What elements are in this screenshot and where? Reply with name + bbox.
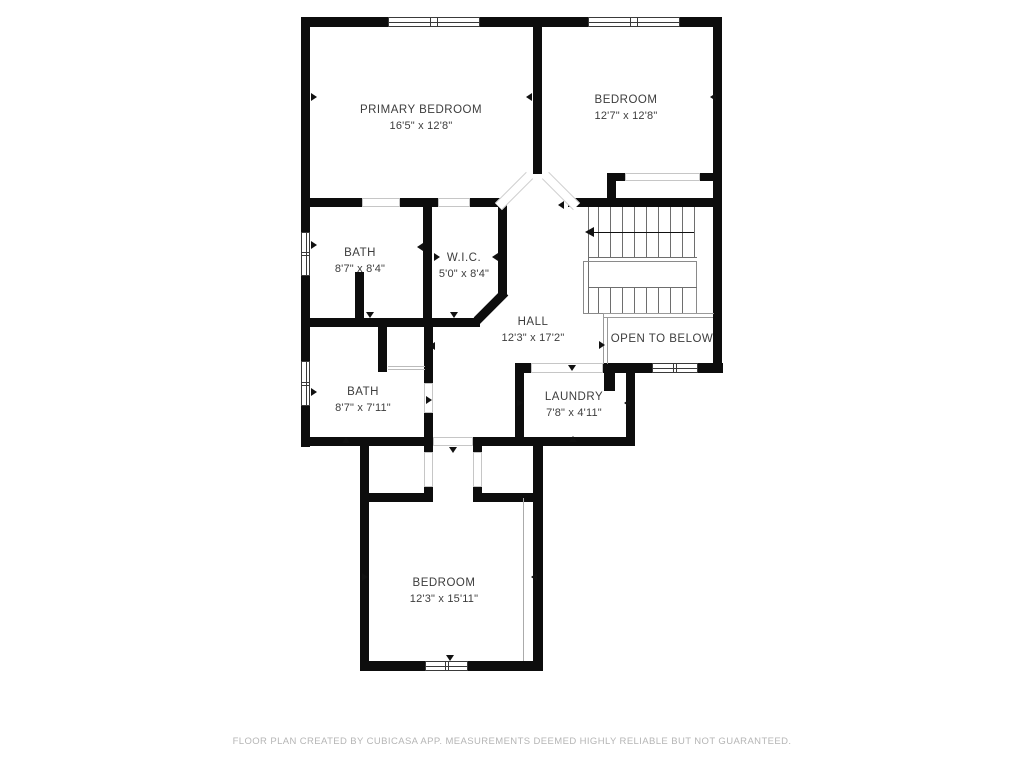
wall [360, 493, 430, 502]
measure-marker [417, 243, 423, 251]
window [588, 17, 680, 27]
window [301, 232, 310, 276]
room-dimensions: 12'3" x 17'2" [502, 332, 565, 344]
window [425, 661, 468, 671]
window-glazing-line [653, 368, 697, 369]
stair-tread-line [682, 287, 683, 313]
stair-tread-line [594, 232, 694, 233]
stair-tread-line [622, 287, 623, 313]
wall [533, 27, 542, 174]
room-name: BEDROOM [410, 577, 478, 589]
room-label-primary-bedroom: PRIMARY BEDROOM16'5" x 12'8" [360, 104, 482, 132]
stair-tread-line [670, 287, 671, 313]
measure-marker [710, 93, 716, 101]
wall [360, 437, 369, 671]
room-label-bedroom-top: BEDROOM12'7" x 12'8" [595, 94, 658, 122]
window-glazing-line [437, 18, 438, 26]
window [301, 361, 310, 406]
measure-marker [311, 93, 317, 101]
room-dimensions: 12'3" x 15'11" [410, 593, 478, 605]
measure-marker [311, 241, 317, 249]
measure-marker [366, 312, 374, 318]
window-glazing-line [673, 364, 674, 372]
window [388, 17, 480, 27]
room-label-hall: HALL12'3" x 17'2" [502, 316, 565, 344]
stair-tread-line [588, 207, 589, 313]
room-name: BATH [335, 247, 385, 259]
room-dimensions: 7'8" x 4'11" [545, 407, 603, 419]
stair-tread-line [610, 287, 611, 313]
window-glazing-line [676, 364, 677, 372]
room-dimensions: 5'0" x 8'4" [439, 268, 489, 280]
wall [301, 318, 480, 327]
stair-tread-line [388, 369, 425, 370]
window [652, 363, 698, 373]
stair-tread-line [523, 498, 524, 661]
stair-tread-line [658, 287, 659, 313]
room-dimensions: 8'7" x 7'11" [335, 402, 391, 414]
stair-tread-line [583, 261, 584, 313]
measure-marker [599, 341, 605, 349]
window-glazing-line [302, 385, 309, 386]
room-name: BATH [335, 386, 391, 398]
measure-marker [449, 447, 457, 453]
stair-tread-line [598, 287, 599, 313]
footer-disclaimer: FLOOR PLAN CREATED BY CUBICASA APP. MEAS… [0, 736, 1024, 747]
floor-plan-canvas: PRIMARY BEDROOM16'5" x 12'8"BEDROOM12'7"… [0, 0, 1024, 768]
wall [378, 327, 387, 372]
window-glazing-line [630, 18, 631, 26]
room-name: BEDROOM [595, 94, 658, 106]
window-glazing-line [448, 662, 449, 670]
stair-tread-line [603, 313, 604, 364]
window-glazing-line [306, 362, 307, 405]
cased-opening [625, 173, 700, 181]
room-label-laundry: LAUNDRY7'8" x 4'11" [545, 391, 603, 419]
window-glazing-line [302, 382, 309, 383]
measure-marker [426, 396, 432, 404]
window-glazing-line [302, 252, 309, 253]
room-label-wic: W.I.C.5'0" x 8'4" [439, 252, 489, 280]
wall [301, 198, 507, 207]
wall [604, 373, 615, 391]
stair-tread-line [607, 317, 608, 364]
cased-opening [438, 198, 470, 207]
measure-marker [517, 399, 523, 407]
measure-marker [568, 365, 576, 371]
room-dimensions: 16'5" x 12'8" [360, 120, 482, 132]
window-glazing-line [389, 22, 479, 23]
measure-marker [429, 342, 435, 350]
stair-tread-line [634, 287, 635, 313]
wall [498, 198, 507, 297]
window-glazing-line [430, 18, 431, 26]
room-name: LAUNDRY [545, 391, 603, 403]
cased-opening [424, 452, 433, 487]
cased-opening [362, 198, 400, 207]
wall [473, 437, 635, 446]
wall [355, 272, 364, 318]
room-name: OPEN TO BELOW [611, 333, 714, 345]
stair-tread-line [588, 287, 697, 288]
room-name: PRIMARY BEDROOM [360, 104, 482, 116]
door-opening-diagonal [495, 172, 533, 210]
measure-marker [311, 388, 317, 396]
window-glazing-line [445, 662, 446, 670]
stair-tread-line [388, 366, 425, 367]
measure-marker [492, 253, 498, 261]
cased-opening [531, 363, 603, 373]
stair-tread-line [588, 257, 697, 258]
window-glazing-line [306, 233, 307, 275]
window-glazing-line [302, 255, 309, 256]
window-glazing-line [637, 18, 638, 26]
measure-marker [526, 93, 532, 101]
wall [423, 198, 432, 327]
window-glazing-line [426, 666, 467, 667]
measure-marker [558, 201, 564, 209]
stair-tread-line [583, 261, 697, 262]
cased-opening [473, 452, 482, 487]
wall [713, 17, 722, 373]
wall [533, 437, 543, 671]
measure-marker [362, 573, 368, 581]
cased-opening [433, 437, 473, 446]
window-glazing-line [589, 22, 679, 23]
wall [607, 173, 616, 207]
room-label-bedroom-bottom: BEDROOM12'3" x 15'11" [410, 577, 478, 605]
stair-tread-line [603, 313, 714, 314]
stair-tread-line [603, 317, 713, 318]
room-name: HALL [502, 316, 565, 328]
stair-tread-line [694, 207, 695, 257]
measure-marker [531, 573, 537, 581]
room-label-bath-upper: BATH8'7" x 8'4" [335, 247, 385, 275]
room-label-open-to-below: OPEN TO BELOW [611, 333, 714, 345]
measure-marker [446, 655, 454, 661]
room-name: W.I.C. [439, 252, 489, 264]
room-label-bath-lower: BATH8'7" x 7'11" [335, 386, 391, 414]
room-dimensions: 12'7" x 12'8" [595, 110, 658, 122]
measure-marker [450, 312, 458, 318]
wall [568, 198, 713, 207]
room-dimensions: 8'7" x 8'4" [335, 263, 385, 275]
stair-direction-arrow [585, 227, 594, 237]
stair-tread-line [646, 287, 647, 313]
measure-marker [342, 437, 350, 443]
measure-marker [569, 436, 577, 442]
measure-marker [624, 399, 630, 407]
